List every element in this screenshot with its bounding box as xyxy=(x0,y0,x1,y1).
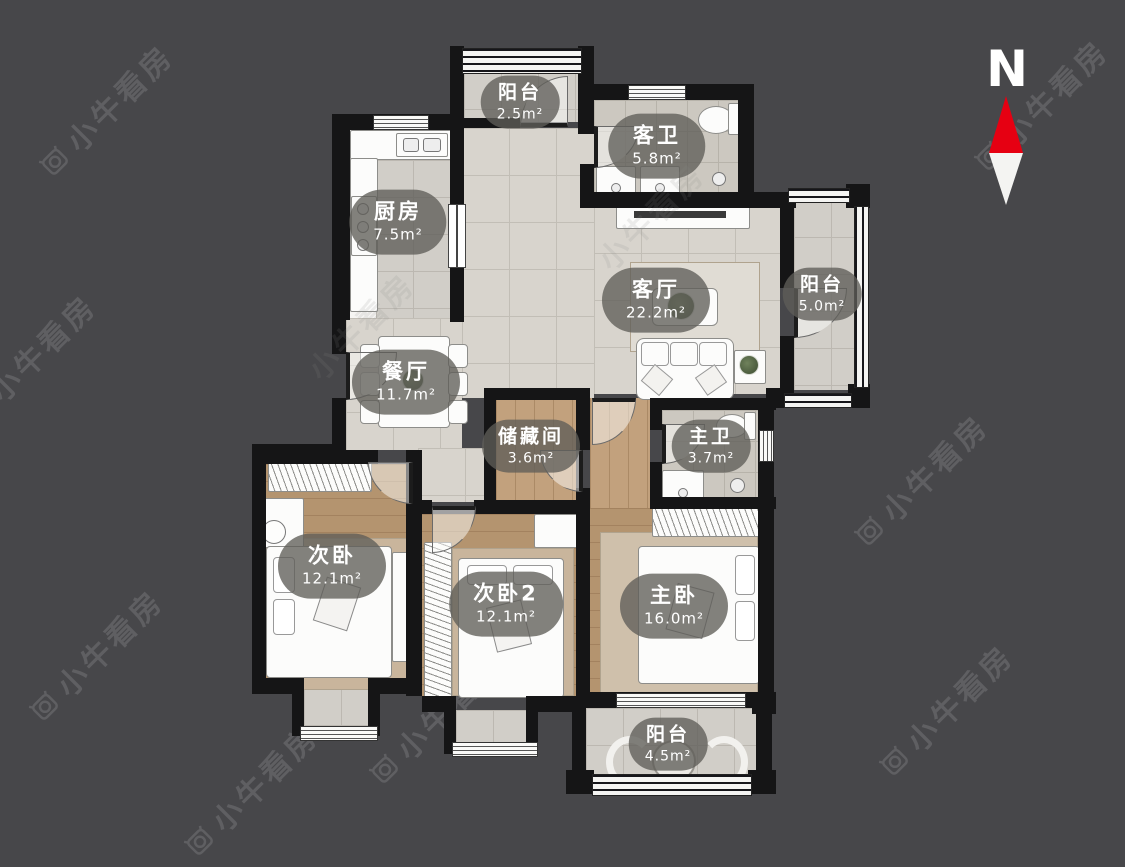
kitchen-stove xyxy=(351,196,377,256)
desk xyxy=(534,514,578,548)
wardrobe xyxy=(424,542,452,698)
wall-segment xyxy=(650,398,776,410)
wall-segment xyxy=(572,700,586,776)
dining-chair xyxy=(448,400,468,424)
bay-window xyxy=(452,742,538,757)
bay-window-floor xyxy=(304,688,368,728)
bay-window-floor xyxy=(456,710,526,744)
balcony-railing xyxy=(788,188,850,203)
wall-segment xyxy=(758,514,774,700)
dining-chair xyxy=(448,344,468,368)
shower-fixture xyxy=(730,478,745,493)
wall-segment xyxy=(484,388,590,400)
wall-segment xyxy=(650,398,662,430)
dining-chair xyxy=(360,400,380,424)
wall-segment xyxy=(594,192,754,208)
kitchen-sliding-door xyxy=(448,204,466,268)
wall-segment xyxy=(332,114,350,320)
wall-segment xyxy=(780,202,794,288)
wall-segment xyxy=(576,388,590,450)
wall-segment xyxy=(756,706,772,778)
compass-north-label: N xyxy=(975,44,1039,94)
bed xyxy=(458,558,564,698)
window xyxy=(759,430,774,462)
wall-segment xyxy=(450,130,464,204)
wardrobe xyxy=(268,460,372,492)
kitchen-sink xyxy=(396,133,448,157)
sofa xyxy=(636,338,734,400)
wall-segment xyxy=(748,770,776,794)
wall-segment xyxy=(650,497,776,509)
wall-segment xyxy=(484,388,496,500)
compass: N xyxy=(975,44,1039,214)
wall-segment xyxy=(252,444,266,686)
balcony-railing xyxy=(592,774,752,796)
balcony-railing xyxy=(784,393,852,408)
plant xyxy=(668,293,694,319)
wall-segment xyxy=(332,398,346,450)
floorplan-page: { "watermark": { "text": "小牛看房" }, "comp… xyxy=(0,0,1125,844)
hall-floor xyxy=(462,128,594,398)
bed xyxy=(638,546,760,684)
compass-needle-south xyxy=(989,153,1023,205)
bed xyxy=(266,546,392,678)
floor-plan: 阳台2.5m² 客卫5.8m² 厨房7.5m² 客厅22.2m² 阳台5.0m²… xyxy=(0,0,1125,844)
wall-segment xyxy=(266,450,378,464)
balcony-railing xyxy=(462,48,582,74)
dining-chair xyxy=(448,372,468,396)
window xyxy=(373,115,429,130)
window xyxy=(628,85,686,100)
corridor-floor xyxy=(418,448,484,502)
wall-segment xyxy=(576,488,590,696)
wall-segment xyxy=(474,500,580,514)
wall-segment xyxy=(450,266,464,322)
plant xyxy=(740,356,758,374)
tv xyxy=(634,211,726,218)
wall-segment xyxy=(780,336,794,396)
wall-segment xyxy=(462,118,520,128)
wardrobe xyxy=(652,507,760,537)
kitchen-tile xyxy=(376,160,450,318)
wall-segment xyxy=(738,84,754,208)
wall-segment xyxy=(332,318,346,354)
wall-segment xyxy=(580,164,594,208)
plant xyxy=(403,370,423,390)
bay-window xyxy=(300,726,378,741)
wall-segment xyxy=(422,500,432,514)
window xyxy=(616,693,746,708)
shower-fixture xyxy=(712,172,726,186)
compass-needle-north xyxy=(989,96,1023,153)
toilet-tank xyxy=(744,412,756,440)
balcony-railing xyxy=(854,206,869,388)
